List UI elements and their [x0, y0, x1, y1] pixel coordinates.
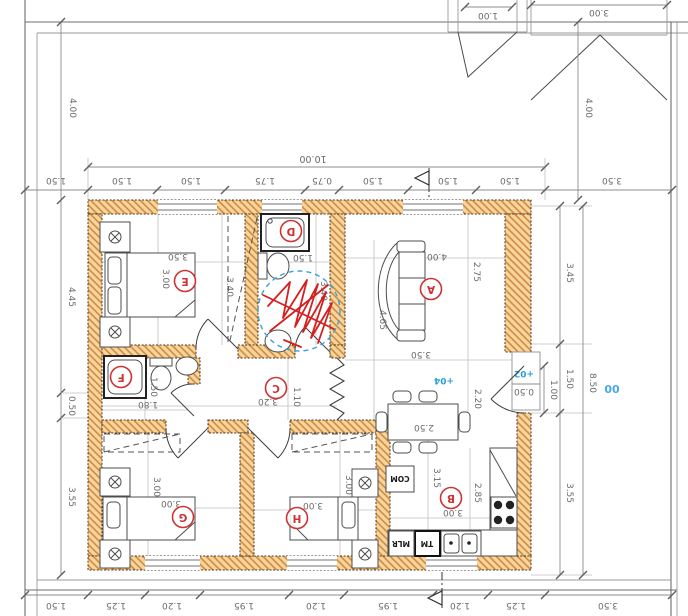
room-h-dim-1: 3.00 [343, 475, 353, 495]
appliance-com-label: COM [390, 474, 409, 483]
door-room-g [166, 428, 208, 458]
canopy-large-dim: 3.00 [589, 7, 609, 17]
entrance-step-dim: 0.50 [514, 386, 534, 396]
svg-text:H: H [293, 512, 302, 524]
appliance-mlr-label: MLR [392, 539, 410, 548]
appliance-tm-label: TM [421, 539, 434, 548]
left-chain-2: 3.55 [66, 487, 76, 507]
bottom-chain-1: 1.25 [106, 600, 126, 610]
top-chain-3: 1.75 [255, 175, 275, 185]
top-chain-8: 3.50 [602, 175, 622, 185]
room-label-d: D [281, 221, 302, 242]
bottom-chain-5: 1.95 [378, 600, 398, 610]
room-label-h: H [287, 508, 308, 529]
room-e-dim-2: 3.40 [224, 277, 234, 297]
floor-plan-drawing: 1.00 3.00 4.00 4.45 0.50 3.55 4.00 10.00 [0, 0, 688, 616]
top-chain-7: 1.50 [500, 175, 520, 185]
window-room-g [145, 556, 200, 570]
svg-text:A: A [426, 283, 435, 295]
setback-right-dim: 4.00 [583, 98, 593, 118]
room-label-f: F [111, 367, 132, 388]
floor-plan-sheet: 1.00 3.00 4.00 4.45 0.50 3.55 4.00 10.00 [0, 0, 688, 616]
left-chain-1: 0.50 [66, 396, 76, 416]
section-marker-top [415, 171, 429, 185]
room-b-dim-0: 3.15 [431, 468, 441, 488]
washbasin-f [176, 357, 198, 375]
left-chain-0: 4.45 [66, 287, 76, 307]
window-room-d [262, 200, 302, 214]
room-e-dim-1: 3.00 [160, 269, 170, 289]
bottom-chain-6: 1.20 [450, 600, 470, 610]
wall-break-zigzag [330, 358, 344, 420]
window-room-e [158, 200, 217, 214]
bottom-chain-3: 1.95 [234, 600, 254, 610]
porch-canopies: 1.00 3.00 [448, 0, 671, 100]
top-chain-1: 1.50 [112, 175, 132, 185]
appliance-com: COM [386, 466, 414, 492]
room-g-dim-1: 3.00 [161, 498, 181, 508]
canopy-small-dim: 1.00 [478, 10, 498, 20]
top-chain-6: 1.50 [438, 175, 458, 185]
ground-level-label: 00 [604, 382, 620, 395]
right-chain-0: 3.45 [564, 263, 574, 283]
svg-text:B: B [447, 492, 455, 504]
right-chain-1: 1.50 [564, 369, 574, 389]
svg-text:E: E [181, 275, 188, 287]
entrance-inside-level: +04 [434, 375, 454, 385]
room-f-dim-1: 1.50 [148, 377, 158, 397]
bottom-chain-8: 3.50 [598, 600, 618, 610]
bottom-chain-0: 1.50 [46, 600, 66, 610]
appliance-mlr: MLR [389, 531, 414, 556]
dining-width-dim: 2.20 [472, 389, 482, 409]
svg-text:G: G [179, 511, 188, 523]
room-e-dim-0: 3.50 [168, 251, 188, 261]
top-chain-5: 1.50 [363, 175, 383, 185]
window-room-a [403, 200, 463, 214]
top-chain-2: 1.50 [181, 175, 201, 185]
room-a-dim-3: 3.50 [411, 349, 431, 359]
right-chain-2: 3.55 [564, 483, 574, 503]
room-b-dim-1: 2.85 [472, 483, 482, 503]
room-c-dim-1: 1.10 [291, 387, 301, 407]
stove [491, 497, 517, 528]
svg-text:F: F [117, 371, 124, 383]
setback-left-dim: 4.00 [67, 98, 77, 118]
bottom-chain-2: 1.20 [162, 600, 182, 610]
door-room-e [196, 319, 238, 349]
canopy-gable-small [458, 32, 517, 77]
entrance-door-width-dim: 1.00 [548, 380, 558, 400]
bottom-chain-4: 1.20 [306, 600, 326, 610]
dining-table-dim: 2.50 [414, 422, 434, 432]
top-chain-0: 1.50 [46, 175, 66, 185]
entrance-step: +02 0.50 [512, 352, 540, 410]
room-label-b: B [441, 488, 462, 509]
room-label-c: C [266, 378, 287, 399]
overall-width-dim: 10.00 [299, 153, 326, 164]
room-label-e: E [175, 271, 196, 292]
right-dimension-chain: 3.45 1.50 3.55 1.00 8.50 00 [531, 202, 620, 579]
door-room-h [248, 428, 290, 458]
room-a-dim-1: 2.75 [471, 262, 481, 282]
overall-height-dim: 8.50 [587, 373, 597, 393]
toilet-f [150, 358, 172, 366]
room-label-a: A [421, 279, 442, 300]
room-label-g: G [173, 507, 194, 528]
kitchen-sink [441, 531, 481, 556]
room-g-dim-0: 3.00 [151, 477, 161, 497]
room-a-dim-2: 4.65 [377, 310, 387, 330]
svg-text:C: C [272, 382, 280, 394]
top-chain-4: 0.75 [312, 175, 332, 185]
toilet-d [258, 253, 267, 279]
window-room-b [426, 556, 477, 570]
bottom-chain-7: 1.25 [506, 600, 526, 610]
room-h-dim-0: 3.00 [303, 500, 323, 510]
door-room-f [171, 384, 194, 416]
appliance-tm: TM [415, 531, 440, 556]
room-a-dim-0: 4.00 [427, 251, 447, 261]
canopy-gable-large [531, 35, 667, 100]
room-d-dim-0: 1.50 [293, 252, 313, 262]
window-room-h [287, 556, 337, 570]
room-f-dim-0: 1.80 [138, 399, 158, 409]
svg-text:D: D [286, 225, 295, 237]
